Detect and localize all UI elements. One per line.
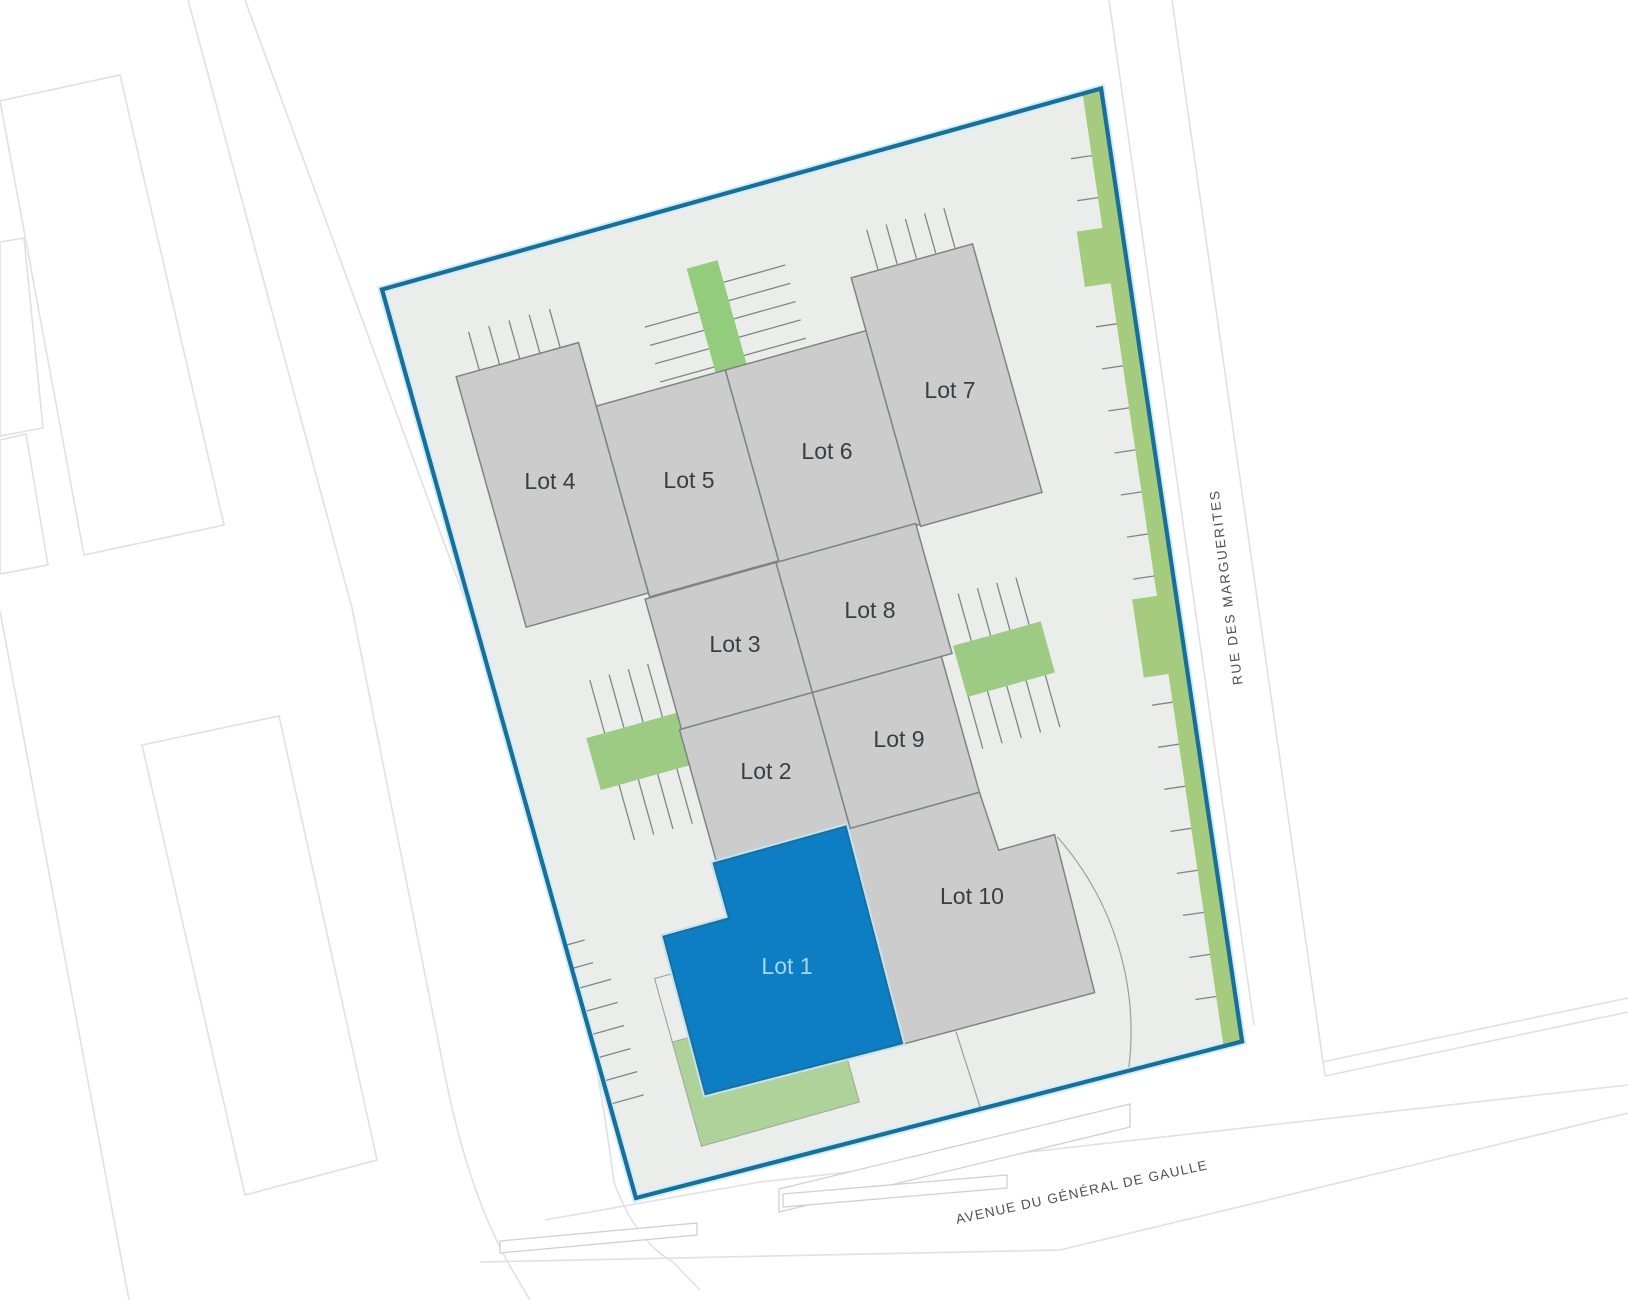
svg-text:Lot 6: Lot 6 (801, 438, 852, 464)
svg-text:Lot 8: Lot 8 (844, 597, 895, 623)
svg-text:Lot 4: Lot 4 (524, 468, 575, 494)
svg-text:Lot 1: Lot 1 (761, 953, 812, 979)
svg-text:Lot 5: Lot 5 (663, 467, 714, 493)
svg-text:Lot 2: Lot 2 (740, 758, 791, 784)
svg-text:Lot 7: Lot 7 (924, 377, 975, 403)
svg-text:Lot 9: Lot 9 (873, 726, 924, 752)
svg-text:Lot 3: Lot 3 (709, 631, 760, 657)
svg-text:Lot 10: Lot 10 (940, 883, 1004, 909)
